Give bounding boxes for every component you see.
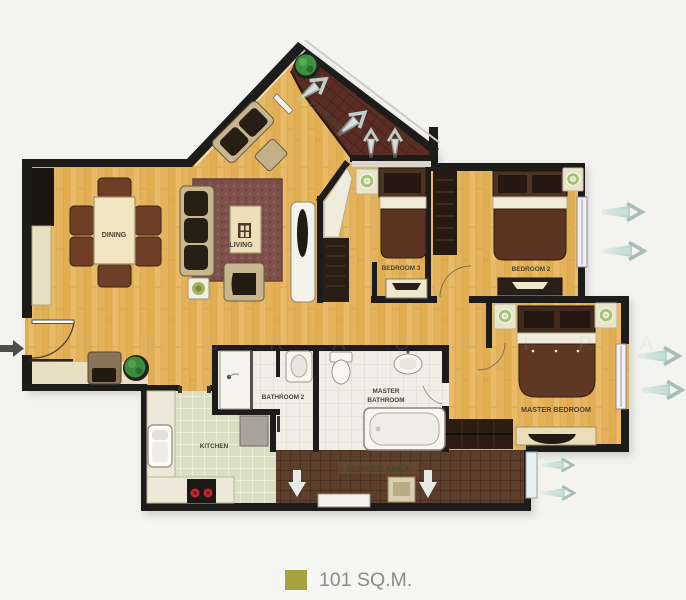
svg-text:MASTER: MASTER: [373, 388, 400, 395]
svg-text:DINING: DINING: [102, 232, 127, 239]
svg-text:BEDROOM 2: BEDROOM 2: [512, 266, 551, 273]
svg-text:KITCHEN: KITCHEN: [200, 443, 229, 450]
svg-text:BATHROOM 2: BATHROOM 2: [262, 394, 305, 401]
svg-text:T B O R A O N I P A H A N: T B O R A O N I P A H A N: [80, 333, 686, 355]
svg-text:BEDROOM 3: BEDROOM 3: [382, 265, 421, 272]
svg-text:BATHROOM: BATHROOM: [367, 397, 404, 404]
svg-text:101 SQ.M.: 101 SQ.M.: [319, 569, 412, 591]
svg-text:SERVICE AREA: SERVICE AREA: [346, 464, 409, 474]
svg-text:LIVING: LIVING: [229, 242, 253, 249]
svg-text:MASTER BEDROOM: MASTER BEDROOM: [521, 405, 591, 414]
